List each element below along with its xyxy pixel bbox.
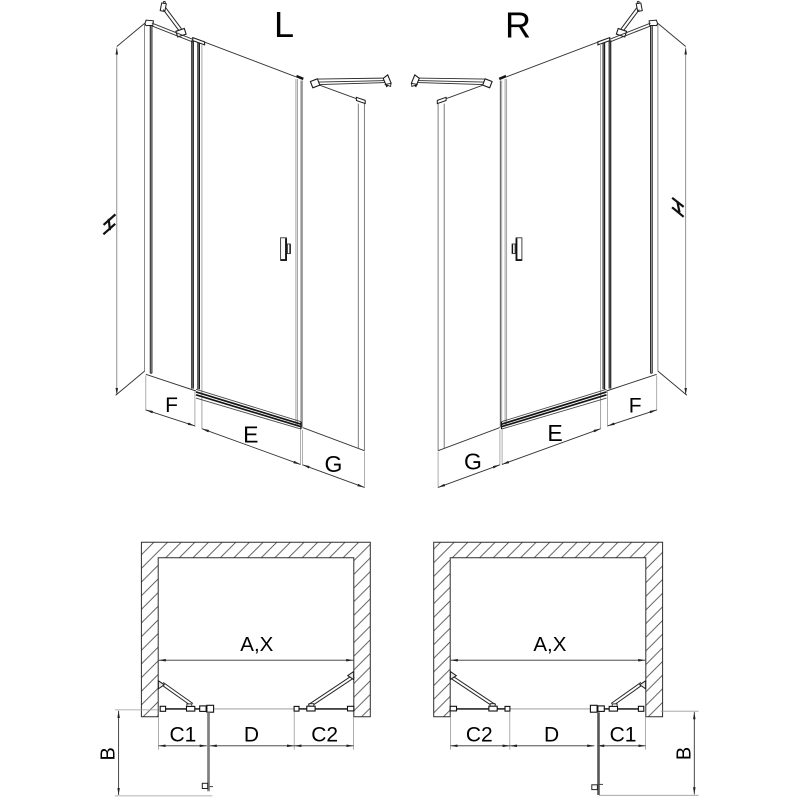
svg-text:C1: C1	[169, 724, 196, 747]
svg-text:R: R	[505, 5, 531, 46]
svg-text:C1: C1	[610, 724, 637, 747]
svg-text:F: F	[165, 394, 178, 417]
svg-text:G: G	[325, 451, 343, 477]
svg-text:E: E	[547, 420, 562, 446]
svg-text:E: E	[243, 422, 258, 448]
svg-text:C2: C2	[311, 724, 338, 747]
svg-text:G: G	[464, 449, 482, 475]
svg-text:F: F	[629, 395, 642, 418]
svg-text:A,X: A,X	[240, 633, 273, 656]
svg-text:B: B	[98, 747, 120, 760]
svg-text:A,X: A,X	[533, 633, 566, 656]
svg-text:C2: C2	[466, 724, 493, 747]
svg-text:B: B	[674, 747, 696, 760]
svg-text:L: L	[274, 4, 294, 45]
svg-text:D: D	[544, 724, 559, 747]
svg-text:D: D	[244, 724, 259, 747]
